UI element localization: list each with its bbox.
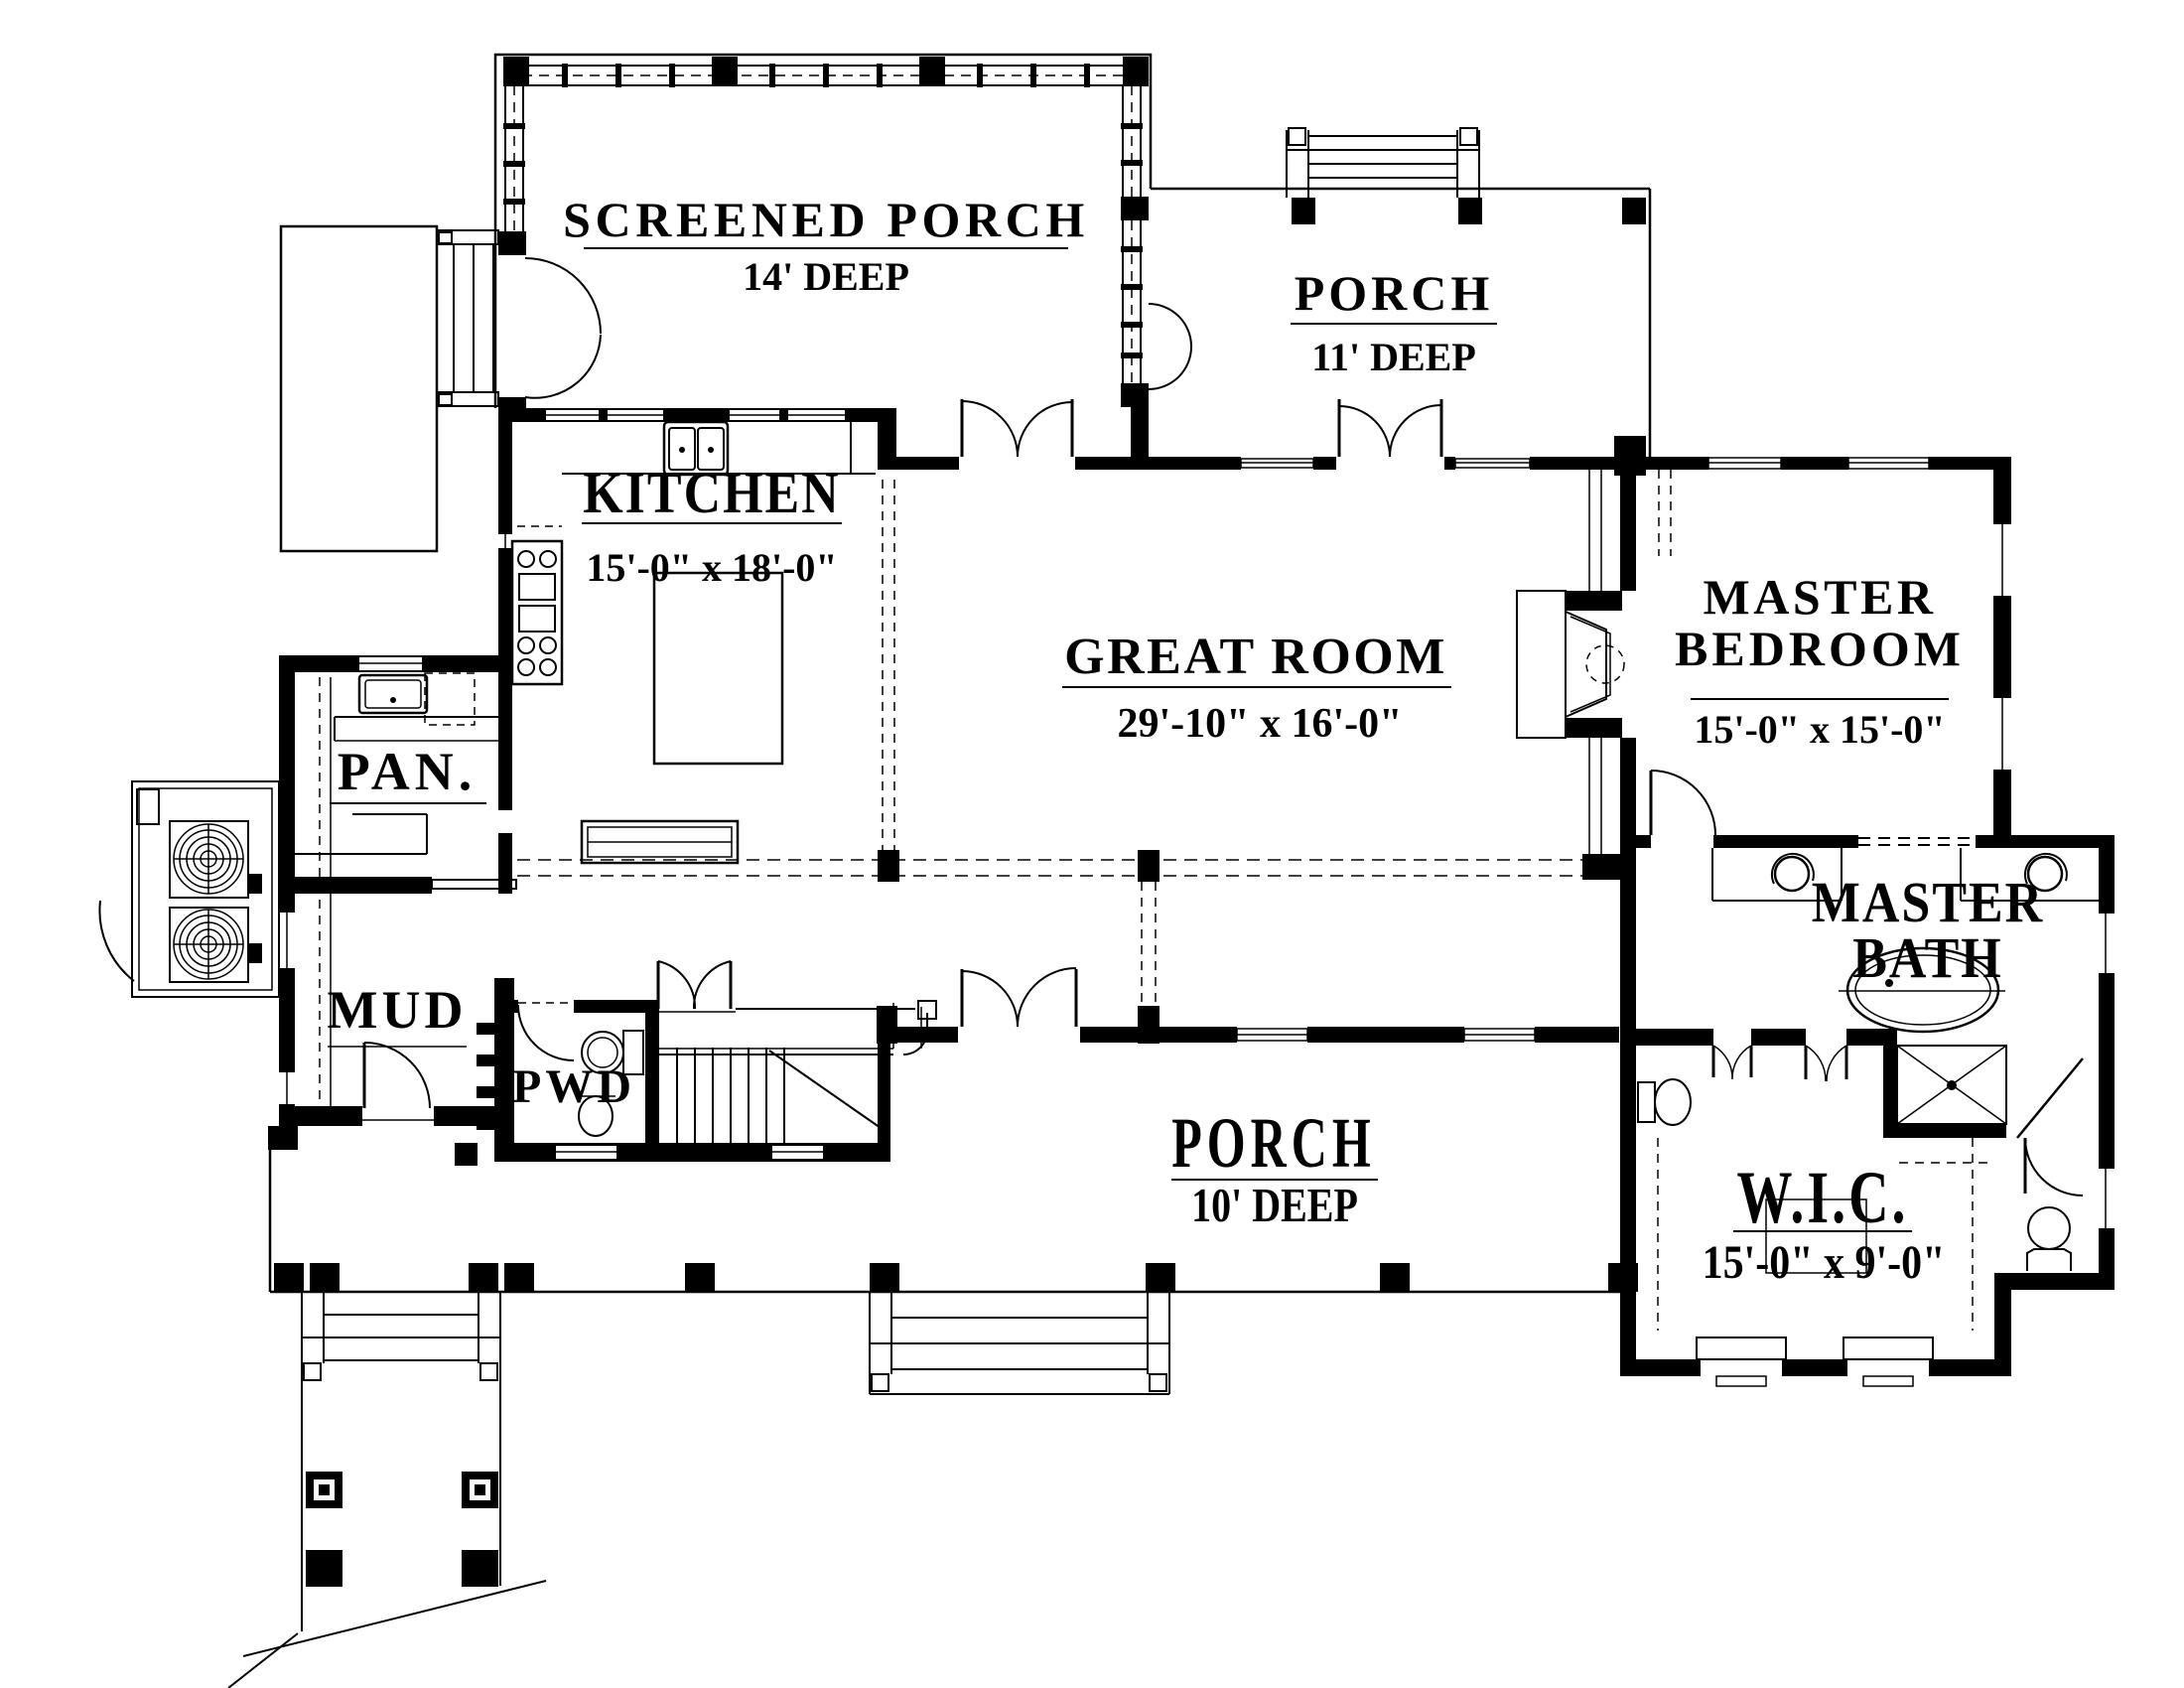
svg-text:10' DEEP: 10' DEEP bbox=[1191, 1178, 1358, 1232]
svg-text:PWD: PWD bbox=[512, 1060, 635, 1113]
svg-text:BEDROOM: BEDROOM bbox=[1675, 621, 1965, 676]
svg-text:BATH: BATH bbox=[1852, 925, 2002, 989]
svg-text:29'-10" x 16'-0": 29'-10" x 16'-0" bbox=[1118, 701, 1403, 747]
svg-text:MASTER: MASTER bbox=[1704, 569, 1937, 625]
svg-text:15'-0" x 18'-0": 15'-0" x 18'-0" bbox=[586, 545, 837, 590]
svg-text:MUD: MUD bbox=[328, 980, 468, 1040]
svg-text:PORCH: PORCH bbox=[1295, 265, 1494, 321]
svg-text:15'-0" x 9'-0": 15'-0" x 9'-0" bbox=[1703, 1236, 1946, 1289]
svg-text:GREAT ROOM: GREAT ROOM bbox=[1064, 629, 1447, 685]
svg-text:PORCH: PORCH bbox=[1171, 1104, 1376, 1183]
svg-text:W.I.C.: W.I.C. bbox=[1736, 1157, 1908, 1239]
svg-text:KITCHEN: KITCHEN bbox=[583, 461, 841, 526]
svg-text:15'-0" x 15'-0": 15'-0" x 15'-0" bbox=[1694, 707, 1945, 752]
svg-text:14' DEEP: 14' DEEP bbox=[743, 254, 909, 299]
svg-text:11' DEEP: 11' DEEP bbox=[1311, 335, 1476, 379]
svg-text:PAN.: PAN. bbox=[338, 742, 477, 801]
svg-text:SCREENED PORCH: SCREENED PORCH bbox=[563, 192, 1089, 247]
svg-text:MASTER: MASTER bbox=[1812, 870, 2044, 933]
